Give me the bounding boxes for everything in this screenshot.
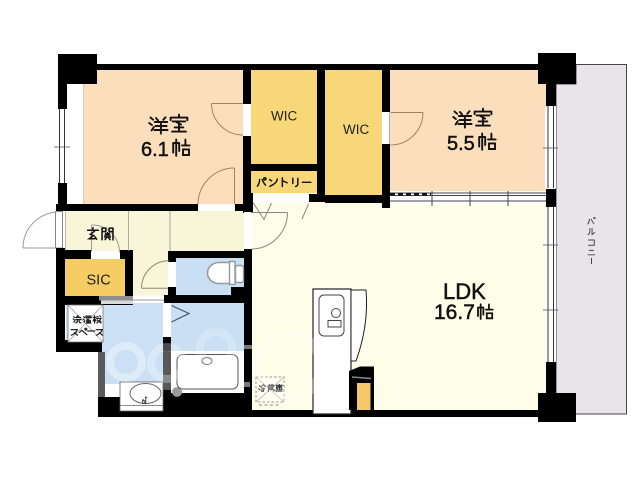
svg-text:WIC: WIC xyxy=(343,122,369,137)
svg-text:SIC: SIC xyxy=(87,273,111,289)
svg-text:5.5: 5.5 xyxy=(447,133,475,155)
svg-text:16.7: 16.7 xyxy=(434,301,475,324)
svg-text:WIC: WIC xyxy=(271,109,297,124)
svg-text:6.1: 6.1 xyxy=(141,139,169,161)
